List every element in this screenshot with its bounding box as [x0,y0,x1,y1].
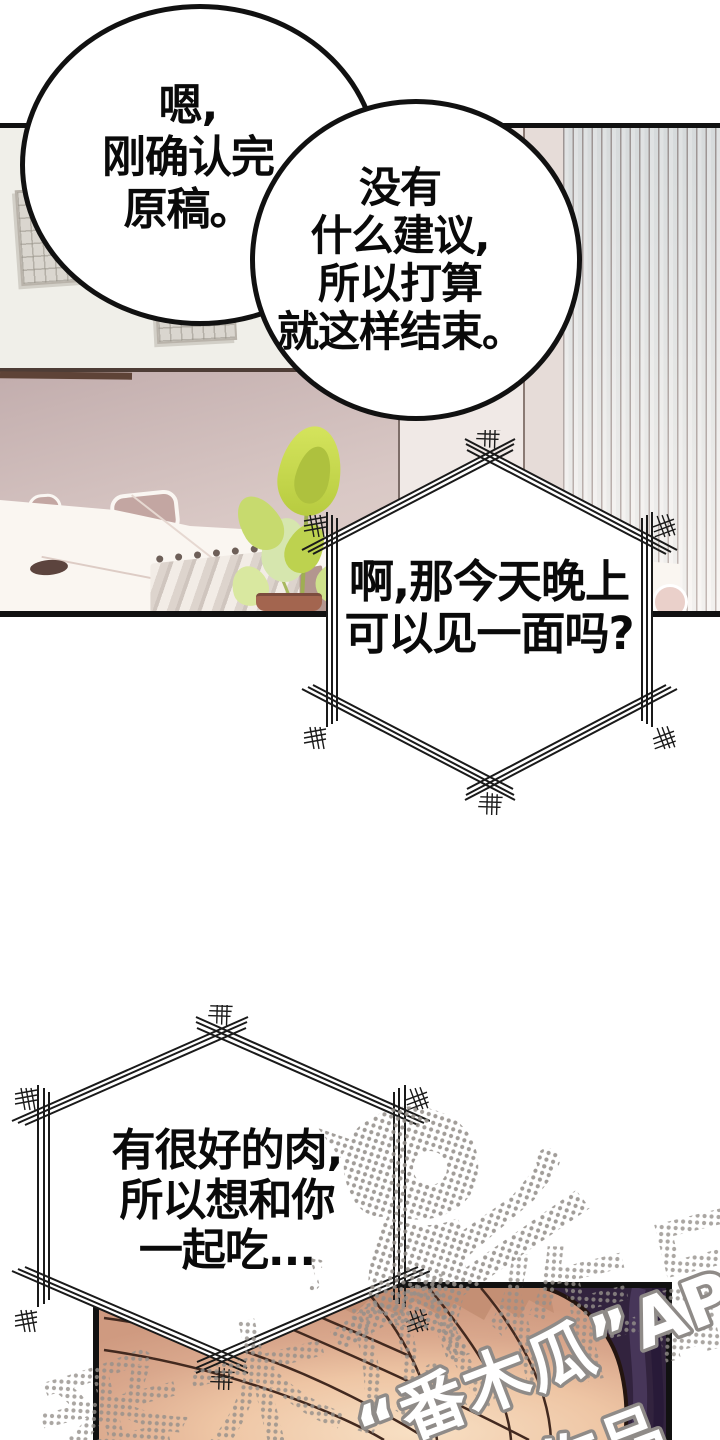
speech-line: 没有 [359,164,441,212]
speech-line: 嗯, [159,80,218,132]
speech-line: 所以打算 [318,260,482,308]
phone-bubble-2-text: 有很好的肉, 所以想和你 一起吃... [47,1126,407,1276]
comic-page: 嗯, 刚确认完 原稿。 没有 什么建议, 所以打算 就这样结束。 啊,那今天晚上… [0,0,720,1440]
speech-line: 所以想和你 [120,1176,335,1226]
purple-streak [636,1288,640,1440]
phone-bubble-1-text: 啊,那今天晚上 可以见一面吗? [309,556,669,660]
speech-line: 有很好的肉, [112,1126,343,1176]
speech-line: 就这样结束。 [277,308,523,356]
speech-line: 一起吃... [139,1226,315,1276]
counter-ledge [0,371,132,379]
speech-bubble-2-text: 没有 什么建议, 所以打算 就这样结束。 [220,164,580,356]
speech-line: 可以见一面吗? [344,608,633,660]
speech-line: 啊,那今天晚上 [349,556,629,608]
speech-line: 什么建议, [311,212,490,260]
purple-streak [655,1288,658,1440]
